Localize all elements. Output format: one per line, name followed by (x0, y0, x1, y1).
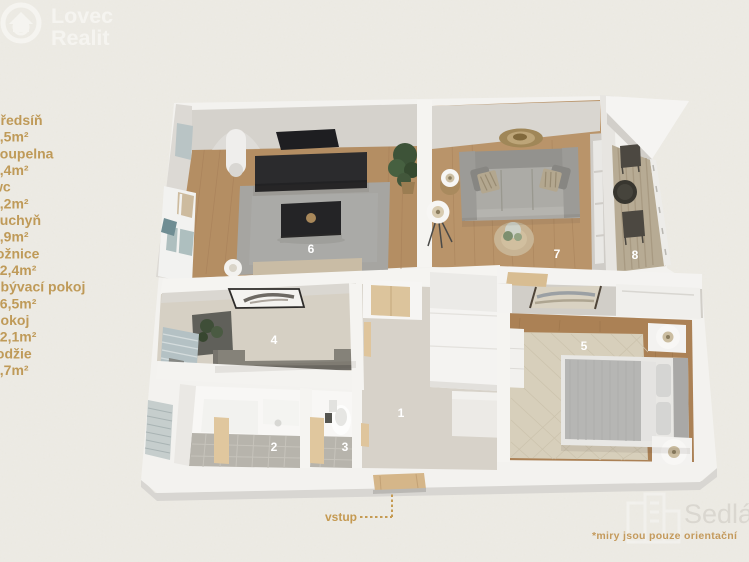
svg-text:7,9m²: 7,9m² (0, 229, 29, 245)
svg-text:koupelna: koupelna (0, 145, 54, 161)
svg-text:1,2m²: 1,2m² (0, 195, 29, 211)
svg-text:8: 8 (632, 248, 639, 262)
svg-text:6: 6 (308, 242, 315, 256)
svg-text:3: 3 (342, 440, 349, 454)
svg-text:obývací pokoj: obývací pokoj (0, 279, 85, 295)
svg-text:4,7m²: 4,7m² (0, 362, 29, 378)
svg-text:5: 5 (581, 339, 588, 353)
svg-text:5,5m²: 5,5m² (0, 129, 29, 145)
svg-text:*miry jsou pouze orientační: *miry jsou pouze orientační (592, 530, 738, 542)
svg-text:1: 1 (398, 406, 405, 420)
svg-text:4: 4 (271, 333, 278, 347)
svg-text:pokoj: pokoj (0, 312, 29, 328)
svg-text:2,4m²: 2,4m² (0, 162, 29, 178)
svg-text:12,4m²: 12,4m² (0, 262, 37, 278)
svg-text:2: 2 (271, 440, 278, 454)
svg-text:předsíň: předsíň (0, 112, 43, 128)
svg-text:Realit: Realit (51, 26, 110, 50)
svg-text:ložnice: ložnice (0, 245, 40, 261)
svg-text:7: 7 (554, 247, 561, 261)
svg-text:kuchyň: kuchyň (0, 212, 41, 228)
svg-text:Lovec: Lovec (51, 4, 113, 28)
svg-text:Sedláč: Sedláč (684, 499, 749, 529)
svg-text:lodžie: lodžie (0, 345, 32, 361)
svg-text:wc: wc (0, 179, 11, 195)
svg-text:12,1m²: 12,1m² (0, 329, 37, 345)
svg-text:16,5m²: 16,5m² (0, 295, 37, 311)
svg-text:vstup: vstup (325, 510, 357, 524)
